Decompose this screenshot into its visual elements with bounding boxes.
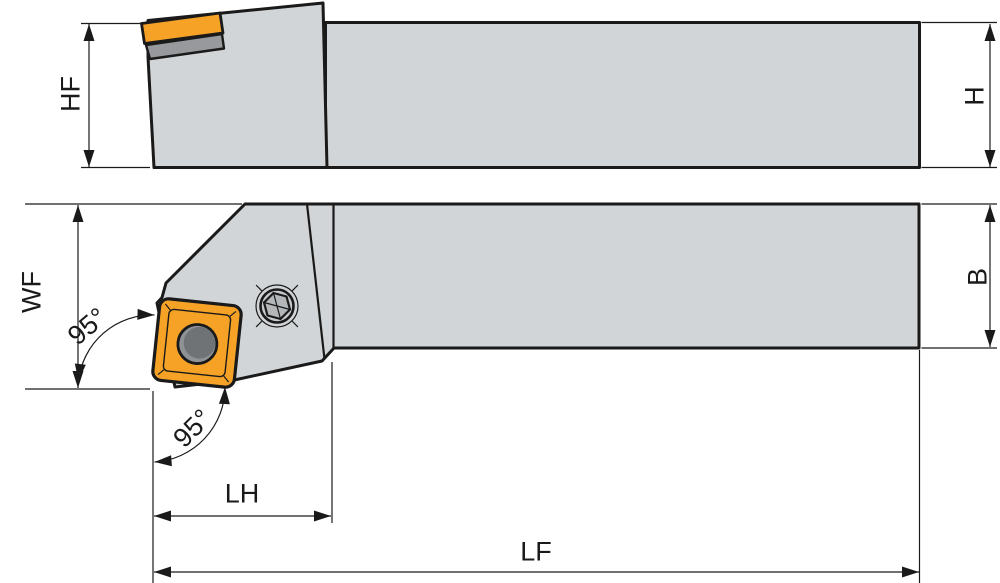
side-view [142, 3, 920, 168]
dimension-hf: HF [55, 24, 150, 168]
h-arrow-down-icon [985, 150, 996, 167]
lh-arrow-right-icon [314, 511, 331, 522]
lf-label: LF [520, 536, 552, 566]
clamp-screw [256, 285, 298, 327]
hf-arrow-up-icon [84, 24, 95, 41]
top-view [152, 204, 919, 388]
angle-95-lower: 95° [155, 387, 230, 466]
h-label: H [959, 86, 989, 106]
h-arrow-up-icon [985, 24, 996, 41]
hf-label: HF [55, 76, 85, 112]
dimension-b: B [922, 204, 998, 348]
top-insert [152, 298, 242, 388]
lh-label: LH [225, 478, 260, 508]
angle-lower-label: 95° [167, 403, 217, 453]
side-shank [326, 23, 920, 168]
b-label: B [962, 268, 992, 286]
dimension-lf: LF [154, 350, 920, 583]
technical-drawing: HF H [0, 0, 1000, 583]
b-arrow-down-icon [985, 330, 996, 347]
angle-lower-arrow-left-icon [155, 455, 172, 466]
dimension-h: H [922, 23, 998, 168]
dimension-lh: LH [153, 362, 332, 583]
hf-arrow-down-icon [84, 150, 95, 167]
angle-upper-label: 95° [62, 302, 113, 351]
lh-arrow-left-icon [154, 511, 171, 522]
lf-arrow-left-icon [154, 567, 171, 578]
b-arrow-up-icon [985, 205, 996, 222]
lf-arrow-right-icon [902, 567, 919, 578]
wf-label: WF [16, 271, 46, 313]
angle-95-upper: 95° [62, 302, 154, 381]
angle-lower-arrow-up-icon [219, 387, 230, 404]
angle-upper-arrow-right-icon [137, 309, 154, 320]
wf-arrow-up-icon [73, 205, 84, 222]
drawing-canvas: HF H [0, 0, 1000, 583]
